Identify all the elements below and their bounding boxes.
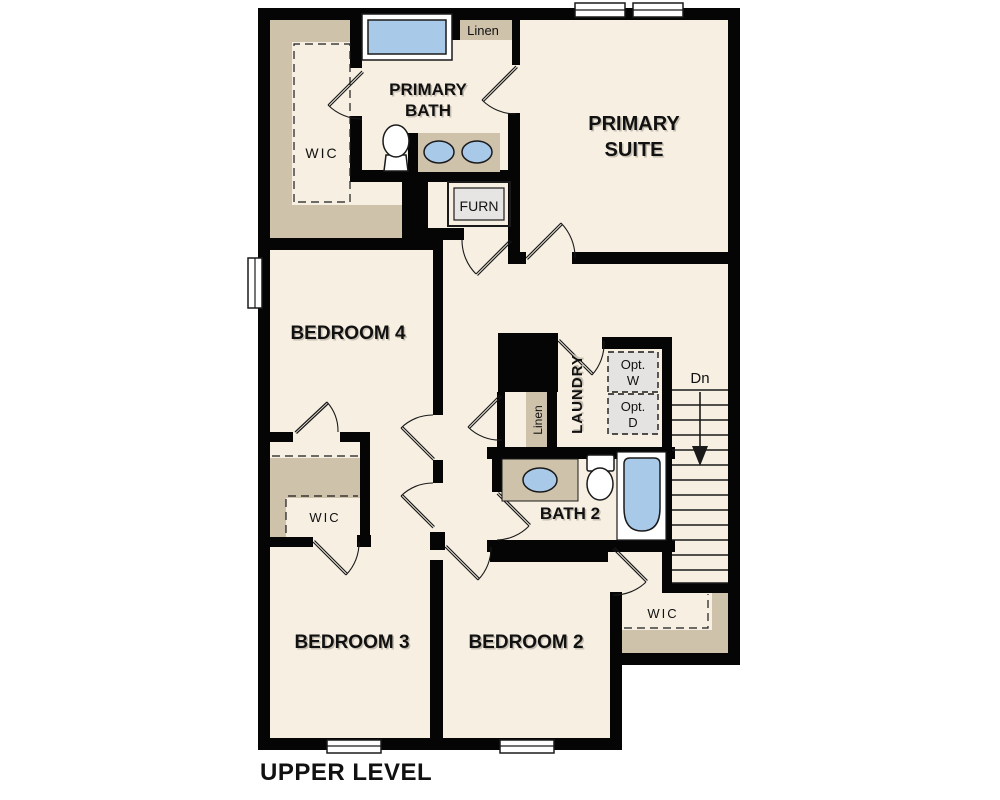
wall-segment xyxy=(452,12,460,40)
window xyxy=(500,740,554,753)
label-primary-bath: BATH xyxy=(405,101,451,120)
wall-segment xyxy=(258,8,270,750)
wall-segment xyxy=(610,592,622,750)
wall-segment xyxy=(258,238,443,250)
toilet-icon xyxy=(587,455,614,500)
floor-plan: Dn xyxy=(0,0,1000,800)
window xyxy=(248,258,262,308)
toilet-icon xyxy=(383,125,409,171)
wall-segment xyxy=(572,252,740,264)
label-primary-suite: PRIMARY xyxy=(588,113,680,135)
sink-icon xyxy=(523,468,557,492)
wall-segment xyxy=(350,18,362,68)
stairs-down-label: Dn xyxy=(690,370,709,387)
label-primary-bath: PRIMARY xyxy=(389,80,467,99)
sink-icon xyxy=(462,141,492,163)
dryer-label: Opt. xyxy=(621,399,646,414)
label-primary-suite: SUITE xyxy=(605,139,664,161)
bathtub-icon xyxy=(617,452,666,540)
wall-segment xyxy=(547,392,557,448)
bedroom4-closet-shelf xyxy=(270,458,362,478)
bedroom3-wic-shelf xyxy=(270,478,286,537)
wall-segment xyxy=(258,432,293,442)
label-bedroom-3-wic: WIC xyxy=(309,510,340,525)
furnace: FURN xyxy=(448,182,510,226)
wall-segment xyxy=(662,583,740,593)
wall-segment xyxy=(360,432,370,492)
wall-segment xyxy=(433,460,443,483)
furnace-label: FURN xyxy=(460,198,499,214)
wall-segment xyxy=(610,653,740,665)
wall-segment xyxy=(430,560,443,750)
window xyxy=(327,740,381,753)
bath2-vanity xyxy=(502,459,578,501)
wall-segment xyxy=(258,537,313,547)
wall-segment xyxy=(487,540,675,552)
wall-segment xyxy=(512,18,520,65)
washer-label: Opt. xyxy=(621,357,646,372)
dryer-label: D xyxy=(628,415,637,430)
label-bedroom-4: BEDROOM 4 xyxy=(290,323,406,344)
window xyxy=(575,3,625,17)
wall-segment xyxy=(728,8,740,665)
washer-optional: Opt. W xyxy=(608,352,658,392)
wall-segment xyxy=(430,532,445,550)
window xyxy=(633,3,683,17)
wall-segment xyxy=(433,245,443,415)
label-bath-2: BATH 2 xyxy=(540,504,600,523)
page-title: UPPER LEVEL xyxy=(260,759,432,786)
label-primary-wic: WIC xyxy=(305,145,338,161)
wall-segment xyxy=(360,490,370,537)
wall-segment xyxy=(512,252,526,264)
dryer-optional: Opt. D xyxy=(608,394,658,434)
primary-wic-shelf xyxy=(270,205,402,240)
washer-label: W xyxy=(627,373,640,388)
bedroom2-wic-shelf xyxy=(620,630,728,653)
shower-icon xyxy=(362,14,452,60)
primary-wic-shelf xyxy=(270,18,362,42)
label-bedroom-2: BEDROOM 2 xyxy=(468,632,583,653)
label-linen-hall: Linen xyxy=(531,405,545,434)
wall-segment xyxy=(498,333,558,392)
sink-icon xyxy=(424,141,454,163)
primary-vanity xyxy=(418,133,500,172)
label-laundry: LAUNDRY xyxy=(569,354,586,434)
label-linen-upper: Linen xyxy=(467,23,499,38)
label-bedroom-3: BEDROOM 3 xyxy=(294,632,409,653)
wall-segment xyxy=(492,447,502,492)
wall-segment xyxy=(602,337,672,349)
label-bedroom-2-wic: WIC xyxy=(647,606,678,621)
